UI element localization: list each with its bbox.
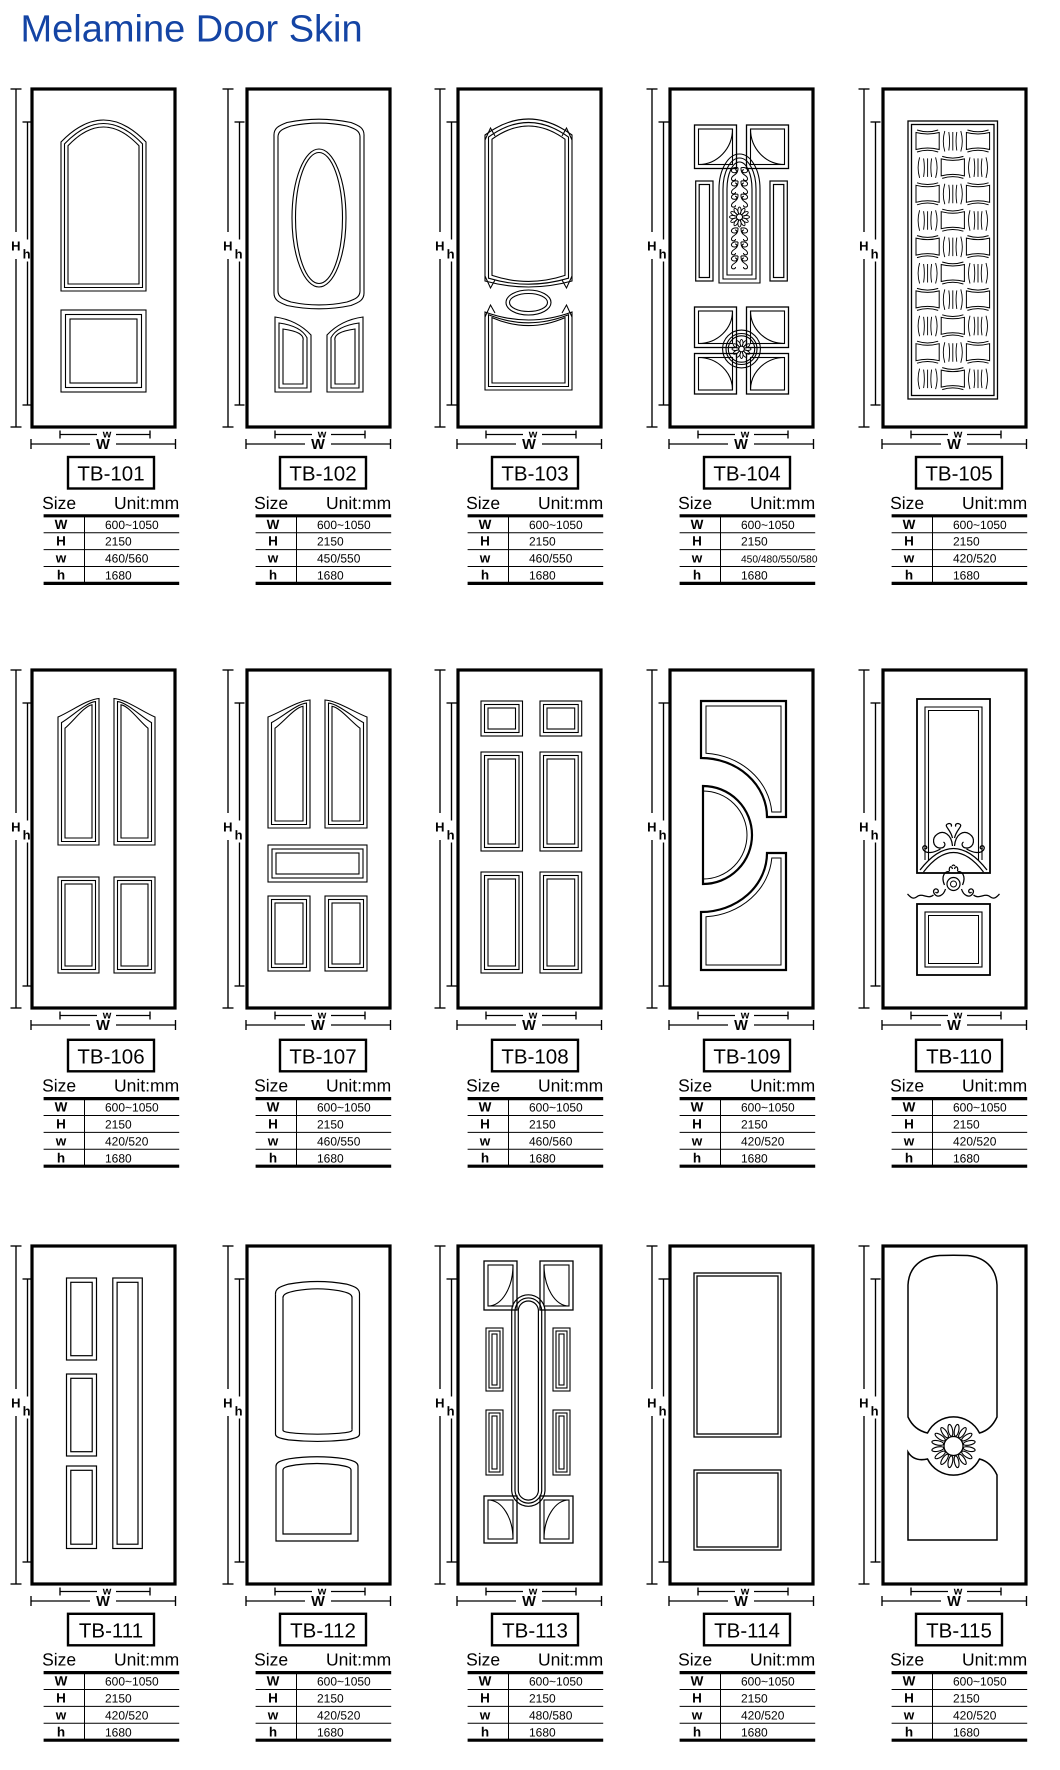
svg-text:W: W — [734, 1594, 748, 1610]
svg-text:1680: 1680 — [953, 1151, 980, 1165]
svg-text:w: w — [55, 1707, 67, 1722]
svg-text:w: w — [479, 1707, 491, 1722]
svg-text:420/520: 420/520 — [105, 1708, 149, 1722]
svg-text:W: W — [522, 1018, 536, 1034]
svg-text:w: w — [903, 1707, 915, 1722]
svg-text:1680: 1680 — [105, 1151, 132, 1165]
svg-text:600~1050: 600~1050 — [317, 518, 371, 532]
svg-text:1680: 1680 — [317, 1151, 344, 1165]
svg-text:420/520: 420/520 — [953, 552, 997, 566]
svg-text:h: h — [23, 828, 31, 843]
svg-text:h: h — [23, 1404, 31, 1419]
svg-text:h: h — [481, 1724, 489, 1739]
svg-text:H: H — [904, 1117, 914, 1132]
svg-text:Size: Size — [254, 1650, 288, 1670]
svg-text:TB-108: TB-108 — [501, 1045, 568, 1068]
svg-text:460/550: 460/550 — [317, 1134, 361, 1148]
svg-text:1680: 1680 — [529, 569, 556, 583]
svg-text:H: H — [11, 820, 20, 835]
svg-text:Unit:mm: Unit:mm — [538, 1650, 603, 1670]
svg-text:2150: 2150 — [529, 535, 556, 549]
svg-text:Size: Size — [42, 1076, 76, 1096]
svg-text:H: H — [904, 1691, 914, 1706]
svg-text:h: h — [905, 568, 913, 583]
svg-text:TB-105: TB-105 — [925, 463, 992, 486]
svg-text:TB-113: TB-113 — [502, 1619, 568, 1642]
svg-text:h: h — [57, 568, 65, 583]
svg-text:600~1050: 600~1050 — [741, 1101, 795, 1115]
svg-text:1680: 1680 — [953, 1725, 980, 1739]
svg-text:h: h — [659, 1404, 667, 1419]
svg-text:TB-104: TB-104 — [713, 463, 780, 486]
svg-text:600~1050: 600~1050 — [317, 1675, 371, 1689]
svg-text:TB-101: TB-101 — [77, 463, 144, 486]
svg-text:2150: 2150 — [953, 535, 980, 549]
svg-text:460/560: 460/560 — [105, 552, 149, 566]
svg-text:TB-115: TB-115 — [926, 1619, 992, 1642]
svg-text:W: W — [903, 517, 916, 532]
svg-text:420/520: 420/520 — [953, 1708, 997, 1722]
svg-text:H: H — [223, 1396, 232, 1411]
svg-text:H: H — [11, 1396, 20, 1411]
svg-text:Size: Size — [890, 1076, 924, 1096]
svg-text:420/520: 420/520 — [741, 1134, 785, 1148]
svg-text:2150: 2150 — [317, 1118, 344, 1132]
svg-text:w: w — [479, 1133, 491, 1148]
svg-text:h: h — [871, 247, 879, 262]
svg-text:600~1050: 600~1050 — [529, 518, 583, 532]
svg-text:W: W — [267, 1674, 280, 1689]
svg-text:Unit:mm: Unit:mm — [114, 493, 179, 513]
svg-text:H: H — [647, 1396, 656, 1411]
svg-text:h: h — [905, 1150, 913, 1165]
svg-text:h: h — [269, 1150, 277, 1165]
svg-text:W: W — [947, 437, 961, 453]
svg-text:W: W — [734, 437, 748, 453]
svg-text:H: H — [904, 534, 914, 549]
svg-text:H: H — [11, 239, 20, 254]
svg-text:Unit:mm: Unit:mm — [962, 1650, 1027, 1670]
svg-text:w: w — [903, 1133, 915, 1148]
svg-text:h: h — [235, 828, 243, 843]
svg-text:Size: Size — [466, 1076, 500, 1096]
svg-text:Unit:mm: Unit:mm — [326, 493, 391, 513]
svg-text:W: W — [267, 517, 280, 532]
svg-text:Unit:mm: Unit:mm — [326, 1650, 391, 1670]
svg-text:1680: 1680 — [317, 569, 344, 583]
svg-text:H: H — [268, 534, 278, 549]
svg-text:2150: 2150 — [953, 1692, 980, 1706]
svg-text:W: W — [479, 1674, 492, 1689]
svg-text:h: h — [693, 568, 701, 583]
svg-text:W: W — [947, 1018, 961, 1034]
svg-text:Unit:mm: Unit:mm — [538, 493, 603, 513]
svg-text:2150: 2150 — [529, 1118, 556, 1132]
svg-text:460/550: 460/550 — [529, 552, 573, 566]
svg-text:H: H — [56, 534, 66, 549]
svg-text:TB-103: TB-103 — [501, 463, 568, 486]
svg-text:W: W — [691, 1100, 704, 1115]
svg-text:Size: Size — [42, 1650, 76, 1670]
svg-text:2150: 2150 — [105, 535, 132, 549]
svg-text:Unit:mm: Unit:mm — [962, 493, 1027, 513]
svg-text:420/520: 420/520 — [317, 1708, 361, 1722]
svg-text:H: H — [435, 820, 444, 835]
svg-text:2150: 2150 — [105, 1118, 132, 1132]
svg-text:Unit:mm: Unit:mm — [114, 1076, 179, 1096]
svg-text:W: W — [55, 1100, 68, 1115]
svg-text:Size: Size — [254, 493, 288, 513]
svg-text:1680: 1680 — [105, 1725, 132, 1739]
svg-text:W: W — [522, 1594, 536, 1610]
svg-text:TB-111: TB-111 — [79, 1619, 143, 1642]
svg-text:2150: 2150 — [953, 1118, 980, 1132]
svg-text:600~1050: 600~1050 — [741, 1675, 795, 1689]
svg-text:H: H — [480, 1691, 490, 1706]
svg-text:2150: 2150 — [741, 535, 768, 549]
svg-text:600~1050: 600~1050 — [105, 1675, 159, 1689]
svg-text:w: w — [55, 1133, 67, 1148]
svg-text:W: W — [55, 517, 68, 532]
svg-text:Size: Size — [254, 1076, 288, 1096]
svg-text:TB-110: TB-110 — [926, 1045, 992, 1068]
svg-text:600~1050: 600~1050 — [953, 518, 1007, 532]
svg-text:1680: 1680 — [317, 1725, 344, 1739]
svg-text:Unit:mm: Unit:mm — [114, 1650, 179, 1670]
svg-text:Size: Size — [678, 493, 712, 513]
svg-text:H: H — [268, 1691, 278, 1706]
svg-text:h: h — [659, 828, 667, 843]
svg-text:2150: 2150 — [529, 1692, 556, 1706]
svg-text:H: H — [223, 820, 232, 835]
svg-text:600~1050: 600~1050 — [105, 1101, 159, 1115]
svg-text:H: H — [223, 239, 232, 254]
svg-text:TB-106: TB-106 — [77, 1045, 144, 1068]
svg-text:W: W — [691, 517, 704, 532]
svg-text:h: h — [693, 1724, 701, 1739]
svg-text:600~1050: 600~1050 — [317, 1101, 371, 1115]
svg-text:2150: 2150 — [317, 535, 344, 549]
svg-text:h: h — [57, 1150, 65, 1165]
svg-text:1680: 1680 — [953, 569, 980, 583]
svg-text:H: H — [647, 820, 656, 835]
svg-text:H: H — [859, 1396, 868, 1411]
svg-text:W: W — [311, 1594, 325, 1610]
svg-text:Size: Size — [466, 1650, 500, 1670]
svg-text:480/580: 480/580 — [529, 1708, 573, 1722]
svg-text:h: h — [269, 1724, 277, 1739]
svg-text:Size: Size — [890, 493, 924, 513]
svg-text:TB-114: TB-114 — [714, 1619, 780, 1642]
svg-text:W: W — [479, 1100, 492, 1115]
svg-text:Unit:mm: Unit:mm — [750, 1076, 815, 1096]
svg-text:Unit:mm: Unit:mm — [750, 1650, 815, 1670]
svg-text:H: H — [268, 1117, 278, 1132]
svg-text:Unit:mm: Unit:mm — [326, 1076, 391, 1096]
svg-text:450/480/550/580: 450/480/550/580 — [741, 555, 818, 566]
svg-text:420/520: 420/520 — [105, 1134, 149, 1148]
svg-text:H: H — [859, 239, 868, 254]
svg-text:600~1050: 600~1050 — [529, 1675, 583, 1689]
svg-text:2150: 2150 — [105, 1692, 132, 1706]
svg-text:W: W — [903, 1674, 916, 1689]
svg-text:h: h — [447, 247, 455, 262]
svg-text:W: W — [267, 1100, 280, 1115]
svg-text:Melamine Door Skin: Melamine Door Skin — [21, 9, 363, 51]
svg-text:1680: 1680 — [529, 1151, 556, 1165]
svg-text:Unit:mm: Unit:mm — [962, 1076, 1027, 1096]
svg-text:h: h — [905, 1724, 913, 1739]
svg-text:h: h — [269, 568, 277, 583]
svg-text:w: w — [267, 1707, 279, 1722]
svg-text:Unit:mm: Unit:mm — [538, 1076, 603, 1096]
svg-text:W: W — [522, 437, 536, 453]
svg-text:h: h — [235, 1404, 243, 1419]
svg-text:H: H — [647, 239, 656, 254]
svg-text:h: h — [235, 247, 243, 262]
svg-text:H: H — [692, 1117, 702, 1132]
svg-text:W: W — [903, 1100, 916, 1115]
svg-text:1680: 1680 — [529, 1725, 556, 1739]
svg-text:H: H — [692, 534, 702, 549]
svg-text:H: H — [56, 1691, 66, 1706]
svg-text:600~1050: 600~1050 — [529, 1101, 583, 1115]
svg-text:W: W — [55, 1674, 68, 1689]
svg-text:TB-109: TB-109 — [713, 1045, 780, 1068]
svg-text:W: W — [947, 1594, 961, 1610]
svg-text:450/550: 450/550 — [317, 552, 361, 566]
svg-text:h: h — [57, 1724, 65, 1739]
svg-text:w: w — [903, 551, 915, 566]
svg-text:W: W — [96, 437, 110, 453]
svg-text:Size: Size — [890, 1650, 924, 1670]
svg-text:h: h — [481, 568, 489, 583]
svg-text:600~1050: 600~1050 — [741, 518, 795, 532]
svg-text:460/560: 460/560 — [529, 1134, 573, 1148]
svg-text:H: H — [692, 1691, 702, 1706]
svg-text:w: w — [267, 551, 279, 566]
svg-text:w: w — [55, 551, 67, 566]
svg-text:Size: Size — [42, 493, 76, 513]
svg-text:h: h — [693, 1150, 701, 1165]
svg-text:1680: 1680 — [741, 1725, 768, 1739]
svg-text:h: h — [871, 828, 879, 843]
svg-text:H: H — [859, 820, 868, 835]
svg-text:420/520: 420/520 — [953, 1134, 997, 1148]
svg-text:2150: 2150 — [741, 1692, 768, 1706]
svg-text:TB-112: TB-112 — [290, 1619, 356, 1642]
svg-text:h: h — [481, 1150, 489, 1165]
svg-text:W: W — [479, 517, 492, 532]
svg-text:Size: Size — [678, 1650, 712, 1670]
svg-text:W: W — [691, 1674, 704, 1689]
svg-text:h: h — [447, 828, 455, 843]
svg-text:TB-102: TB-102 — [289, 463, 356, 486]
svg-text:W: W — [734, 1018, 748, 1034]
svg-text:H: H — [435, 1396, 444, 1411]
svg-text:W: W — [96, 1594, 110, 1610]
svg-text:2150: 2150 — [317, 1692, 344, 1706]
svg-text:Size: Size — [466, 493, 500, 513]
svg-text:h: h — [23, 247, 31, 262]
svg-text:W: W — [311, 1018, 325, 1034]
svg-text:h: h — [659, 247, 667, 262]
svg-text:1680: 1680 — [741, 1151, 768, 1165]
svg-text:1680: 1680 — [741, 569, 768, 583]
svg-text:w: w — [267, 1133, 279, 1148]
svg-text:h: h — [871, 1404, 879, 1419]
svg-text:h: h — [447, 1404, 455, 1419]
svg-text:w: w — [691, 551, 703, 566]
svg-text:600~1050: 600~1050 — [953, 1675, 1007, 1689]
svg-text:600~1050: 600~1050 — [953, 1101, 1007, 1115]
svg-text:600~1050: 600~1050 — [105, 518, 159, 532]
svg-text:TB-107: TB-107 — [289, 1045, 356, 1068]
svg-text:Unit:mm: Unit:mm — [750, 493, 815, 513]
svg-text:2150: 2150 — [741, 1118, 768, 1132]
svg-text:1680: 1680 — [105, 569, 132, 583]
svg-text:w: w — [691, 1133, 703, 1148]
svg-text:H: H — [56, 1117, 66, 1132]
svg-text:H: H — [480, 534, 490, 549]
svg-text:H: H — [480, 1117, 490, 1132]
svg-text:W: W — [311, 437, 325, 453]
svg-text:420/520: 420/520 — [741, 1708, 785, 1722]
svg-text:w: w — [479, 551, 491, 566]
svg-text:Size: Size — [678, 1076, 712, 1096]
svg-text:H: H — [435, 239, 444, 254]
svg-text:W: W — [96, 1018, 110, 1034]
svg-text:w: w — [691, 1707, 703, 1722]
